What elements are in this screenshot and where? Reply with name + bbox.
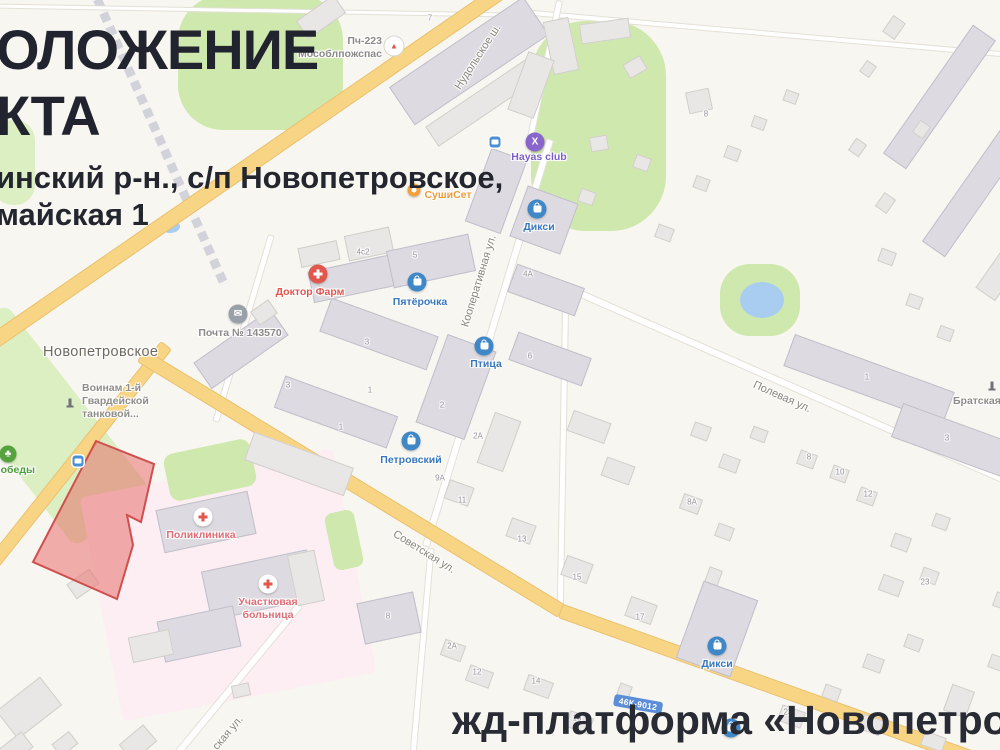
pyaterochka-label: Пятёрочка <box>393 296 447 309</box>
settlement-label: Новопетровское <box>43 344 158 360</box>
cross-icon <box>314 270 323 279</box>
building <box>878 573 904 596</box>
building <box>0 731 34 750</box>
building <box>992 591 1000 611</box>
house-number-label: 7 <box>428 14 432 23</box>
shopping-bag-icon <box>713 643 721 650</box>
house-number-label: 11 <box>458 496 466 505</box>
slide-caption-railway-platform: жд-платформа «Новопетровская <box>452 697 1000 744</box>
shopping-bag-icon <box>480 343 488 350</box>
voinam-memorial-label: Воинам 1-йГвардейскойтанковой... <box>82 382 149 421</box>
cross-icon <box>264 580 273 589</box>
uchastkovaya-bolnitsa-label: Участковаябольница <box>238 596 297 622</box>
doktor-farm-icon <box>309 265 328 284</box>
building <box>386 234 476 289</box>
shopping-bag-icon <box>413 279 421 286</box>
building <box>862 653 885 674</box>
petrovskiy-icon <box>402 432 421 451</box>
house-number-label: 1 <box>339 423 343 432</box>
building <box>690 421 712 441</box>
bus-stop-icon <box>73 456 84 467</box>
house-number-label: 23 <box>921 578 930 587</box>
tree-icon: ♣ <box>5 449 12 459</box>
shopping-bag-icon <box>407 438 415 445</box>
building <box>0 677 62 740</box>
building <box>723 144 742 161</box>
house-number-label: 15 <box>573 573 582 582</box>
house-number-label: 13 <box>518 535 527 544</box>
building <box>936 324 955 341</box>
hayas-club-label: Hayas club <box>511 151 566 164</box>
hayas-club-icon: Х <box>526 133 545 152</box>
building <box>477 412 522 472</box>
house-number-label: 3 <box>945 434 949 443</box>
house-number-label: 2 <box>440 401 444 410</box>
club-x-icon: Х <box>532 137 539 147</box>
building <box>903 634 924 653</box>
building <box>882 15 906 40</box>
building <box>750 115 767 131</box>
building <box>905 292 924 309</box>
dixy-north-label: Дикси <box>523 221 554 234</box>
shopping-bag-icon <box>533 206 541 213</box>
building <box>718 453 741 474</box>
pond <box>740 282 784 318</box>
building <box>987 654 1000 673</box>
building <box>782 89 799 105</box>
voinam-memorial-monument-icon <box>69 399 72 406</box>
building <box>507 264 585 317</box>
pobedy-park-label: Победы <box>0 464 35 477</box>
house-number-label: 8 <box>704 110 708 119</box>
pobedy-park-icon: ♣ <box>0 446 17 463</box>
building <box>922 117 1000 258</box>
envelope-icon: ✉ <box>234 309 242 319</box>
bratskaya-memorial-label: Братская <box>953 395 1000 408</box>
building <box>749 425 768 443</box>
house-number-label: 1 <box>368 386 372 395</box>
house-number-label: 3 <box>365 338 369 347</box>
building <box>508 332 592 387</box>
house-number-label: 6 <box>528 352 532 361</box>
bratskaya-memorial-monument-icon <box>991 382 994 389</box>
house-number-label: 12 <box>473 668 482 677</box>
building <box>51 731 78 750</box>
slide-title-line1: ОЛОЖЕНИЕ <box>0 20 318 80</box>
building <box>877 248 897 267</box>
dixy-south-label: Дикси <box>701 658 732 671</box>
fire-station-icon: ▲ <box>385 37 404 56</box>
post-office-label: Почта № 143570 <box>198 327 281 340</box>
uchastkovaya-bolnitsa-icon <box>259 575 278 594</box>
building <box>975 237 1000 302</box>
house-number-label: 12 <box>864 490 873 499</box>
slide-title-line2: КТА <box>0 86 100 146</box>
building <box>847 137 866 157</box>
cross-icon <box>199 513 208 522</box>
house-number-label: 2А <box>473 432 483 441</box>
slide-address-line2: майская 1 <box>0 196 149 233</box>
fire-icon: ▲ <box>390 42 398 50</box>
house-number-label: 10 <box>836 468 845 477</box>
house-number-label: 8А <box>687 498 697 507</box>
building <box>685 88 713 115</box>
pyaterochka-icon <box>408 273 427 292</box>
house-number-label: 8 <box>807 453 811 462</box>
house-number-label: 3 <box>286 381 290 390</box>
house-number-label: 14 <box>532 677 541 686</box>
doktor-farm-label: Доктор Фарм <box>276 286 345 299</box>
minor-road <box>409 547 434 750</box>
petrovskiy-label: Петровский <box>380 454 441 467</box>
slide-address-line1: инский р-н., с/п Новопетровское, <box>0 159 503 196</box>
poliklinika-label: Поликлиника <box>166 529 235 542</box>
house-number-label: 8 <box>386 612 390 621</box>
house-number-label: 5 <box>413 251 417 260</box>
building <box>600 456 635 485</box>
dixy-north-icon <box>528 200 547 219</box>
building <box>566 410 611 444</box>
house-number-label: 4с2 <box>357 248 370 257</box>
building <box>589 134 609 152</box>
ptitsa-icon <box>475 337 494 356</box>
house-number-label: 9А <box>435 474 445 483</box>
house-number-label: 17 <box>636 613 645 622</box>
dixy-south-icon <box>708 637 727 656</box>
house-number-label: 4А <box>523 270 533 279</box>
building <box>890 532 912 552</box>
slide-map-screenshot: НовопетровскоеНудольское ш.Кооперативная… <box>0 0 1000 750</box>
building <box>692 174 711 191</box>
building <box>654 224 675 243</box>
poliklinika-icon <box>194 508 213 527</box>
building <box>119 724 158 750</box>
post-office-icon: ✉ <box>229 305 248 324</box>
building <box>859 60 877 78</box>
building <box>931 513 951 532</box>
house-number-label: 2А <box>447 642 457 651</box>
building <box>274 376 398 449</box>
building <box>874 192 895 214</box>
road-name-label: ская ул. <box>210 714 245 750</box>
building <box>714 523 735 542</box>
house-number-label: 1 <box>865 373 869 382</box>
ptitsa-label: Птица <box>470 358 502 371</box>
bus-stop-icon <box>490 137 501 148</box>
